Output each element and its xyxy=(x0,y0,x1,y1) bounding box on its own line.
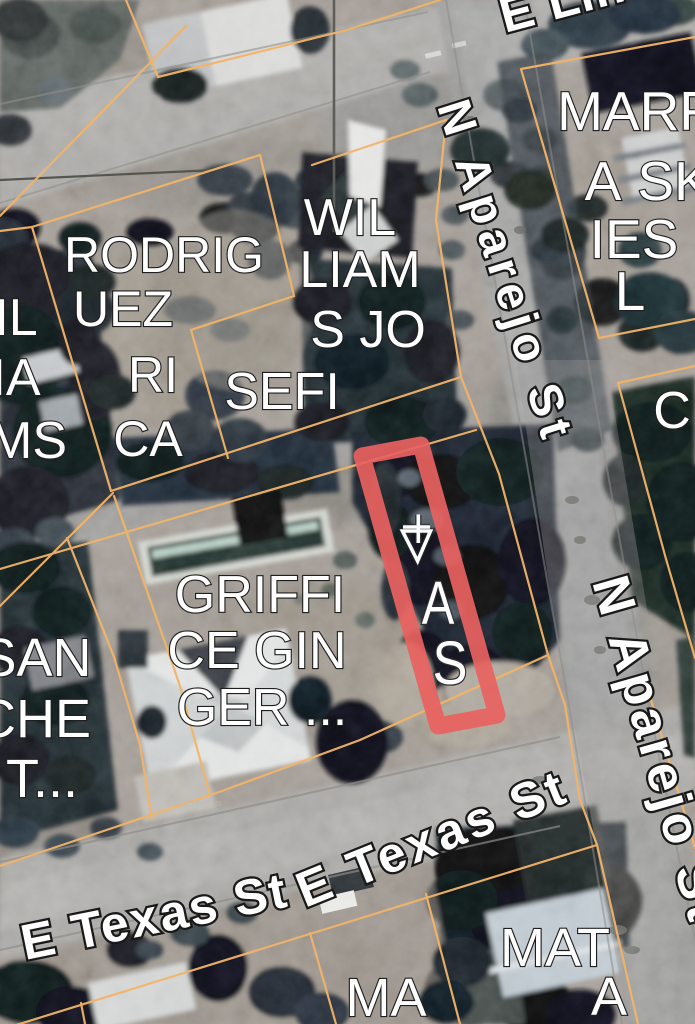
svg-text:MS: MS xyxy=(0,412,67,470)
svg-text:CA: CA xyxy=(113,411,183,467)
svg-text:SEFI: SEFI xyxy=(224,363,340,421)
svg-text:RI: RI xyxy=(128,347,178,403)
svg-text:A: A xyxy=(422,569,455,637)
svg-text:C: C xyxy=(653,382,691,440)
svg-text:LIAM: LIAM xyxy=(299,241,420,299)
svg-text:S JO: S JO xyxy=(310,301,426,359)
svg-text:MARF: MARF xyxy=(557,80,695,142)
svg-text:GRIFFI: GRIFFI xyxy=(175,566,345,624)
svg-text:WIL: WIL xyxy=(304,189,396,247)
svg-text:SK: SK xyxy=(637,150,695,212)
svg-text:T...: T... xyxy=(6,749,78,809)
svg-text:MA: MA xyxy=(346,968,427,1024)
svg-text:S: S xyxy=(433,629,468,698)
svg-text:A: A xyxy=(591,967,627,1024)
svg-text:CHE: CHE xyxy=(0,689,91,749)
svg-text:RODRIG: RODRIG xyxy=(64,227,264,283)
svg-text:A: A xyxy=(585,150,622,212)
svg-text:GER ...: GER ... xyxy=(177,679,347,737)
svg-text:IL: IL xyxy=(0,289,38,347)
svg-text:© 2025 Airbus: © 2025 Airbus xyxy=(165,798,222,808)
svg-text:UEZ: UEZ xyxy=(73,281,173,337)
svg-text:L: L xyxy=(615,260,646,322)
svg-text:CE GIN: CE GIN xyxy=(167,622,346,680)
svg-text:IA: IA xyxy=(0,349,41,407)
svg-text:SAN: SAN xyxy=(0,628,92,688)
